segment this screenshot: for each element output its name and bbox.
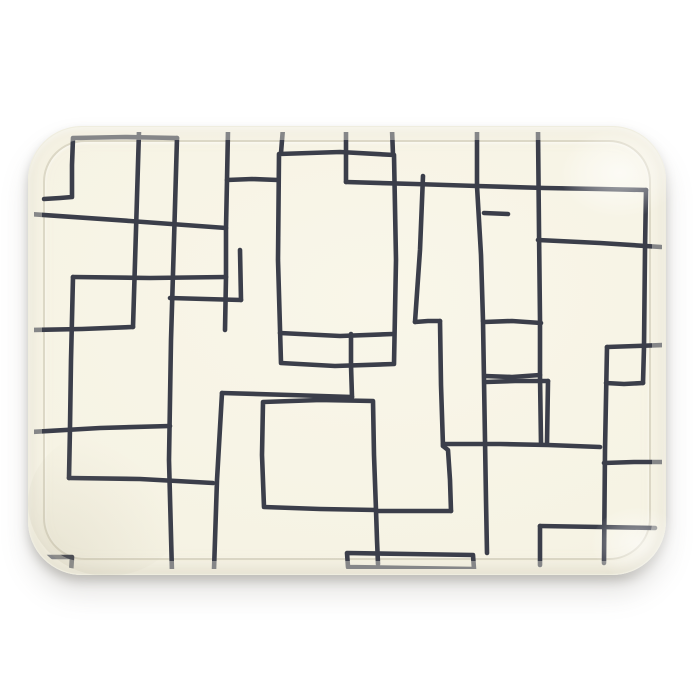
pattern-stroke bbox=[69, 277, 73, 478]
pattern-stroke bbox=[484, 321, 541, 323]
pattern-stroke bbox=[351, 334, 352, 397]
pattern-stroke bbox=[44, 557, 72, 573]
pattern-stroke bbox=[484, 213, 508, 214]
pattern-stroke bbox=[347, 553, 474, 569]
pattern-stroke bbox=[169, 138, 177, 573]
pattern-stroke bbox=[607, 345, 664, 347]
pattern-stroke bbox=[30, 214, 226, 228]
pattern-stroke bbox=[538, 130, 541, 443]
pattern-stroke bbox=[415, 176, 423, 322]
pattern-stroke bbox=[240, 250, 241, 300]
pattern-stroke bbox=[604, 462, 664, 463]
pattern-stroke bbox=[262, 400, 376, 510]
pattern-stroke bbox=[30, 327, 133, 330]
pattern-stroke bbox=[538, 240, 661, 247]
pattern-stroke bbox=[604, 347, 607, 563]
pattern-stroke bbox=[281, 128, 283, 153]
pattern-stroke bbox=[540, 526, 655, 528]
pattern-stroke bbox=[547, 381, 548, 444]
pattern-stroke bbox=[69, 478, 213, 483]
pattern-stroke bbox=[222, 393, 352, 397]
pattern-stroke bbox=[227, 179, 278, 180]
photo-background bbox=[0, 0, 700, 700]
pattern-stroke bbox=[73, 277, 226, 278]
pattern-stroke bbox=[133, 131, 139, 327]
pattern-stroke bbox=[443, 446, 451, 511]
pattern-stroke bbox=[483, 321, 487, 553]
pattern-stroke bbox=[392, 129, 393, 155]
pattern-stroke bbox=[440, 321, 443, 446]
pattern-stroke bbox=[443, 444, 600, 447]
pattern-stroke bbox=[376, 510, 378, 564]
tray-pattern bbox=[0, 0, 700, 700]
pattern-stroke bbox=[280, 333, 393, 336]
pattern-stroke bbox=[477, 186, 483, 321]
pattern-stroke bbox=[486, 381, 548, 382]
pattern-stroke bbox=[346, 182, 646, 190]
pattern-stroke bbox=[415, 321, 440, 322]
pattern-stroke bbox=[485, 375, 540, 377]
pattern-stroke bbox=[214, 393, 222, 570]
pattern-stroke bbox=[44, 137, 177, 199]
pattern-stroke bbox=[606, 383, 643, 384]
pattern-stroke bbox=[30, 426, 170, 432]
pattern-stroke bbox=[170, 298, 241, 300]
pattern-stroke bbox=[643, 190, 646, 383]
